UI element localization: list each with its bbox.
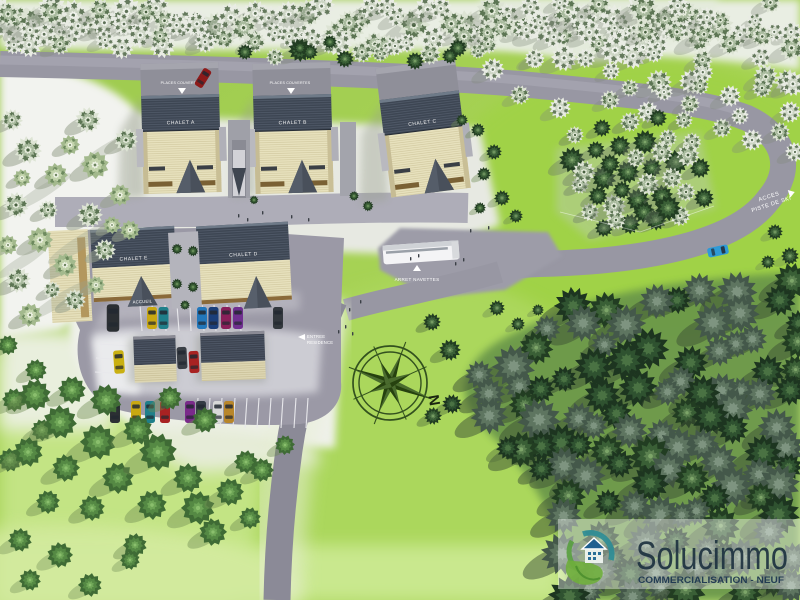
- svg-text:COMMERCIALISATION - NEUF: COMMERCIALISATION - NEUF: [638, 575, 784, 585]
- svg-text:ACCUEIL: ACCUEIL: [133, 298, 153, 304]
- svg-text:ENTREE: ENTREE: [307, 334, 325, 339]
- svg-text:Solucimmo: Solucimmo: [636, 534, 788, 578]
- svg-text:CHALET A: CHALET A: [167, 120, 195, 127]
- svg-text:RESIDENCE: RESIDENCE: [307, 340, 333, 345]
- svg-text:CHALET B: CHALET B: [279, 120, 308, 127]
- svg-text:ARRET NAVETTES: ARRET NAVETTES: [395, 277, 440, 282]
- svg-text:PLACES COUVERTES: PLACES COUVERTES: [270, 81, 311, 85]
